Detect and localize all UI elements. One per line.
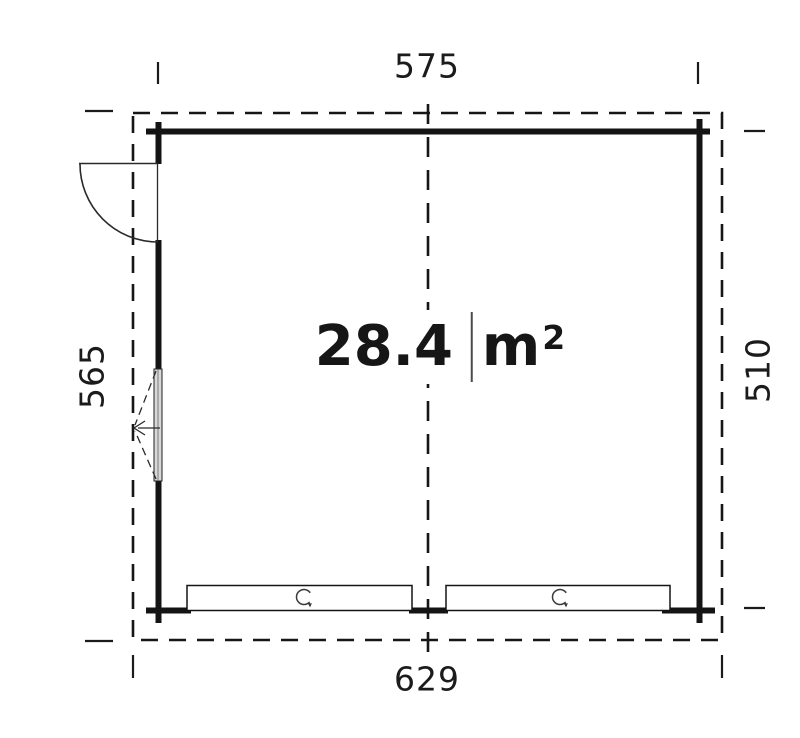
area-value: 28.4 [315,319,453,375]
garage-door-left-panel [187,586,412,611]
dimension-left: 565 [76,343,109,409]
area-unit-base: m [482,314,540,379]
garage-door-right [446,586,670,611]
area-unit-exponent: 2 [542,321,565,354]
window-tilt-icon [134,369,162,481]
dimension-top: 575 [394,50,460,83]
door-swing-arc [80,164,158,242]
area-divider-line [471,312,473,382]
window-open-dash-bottom [135,431,156,479]
garage-door-left [187,586,412,611]
area-label: 28.4 m2 [307,310,574,384]
dimension-bottom: 629 [394,663,460,696]
dimension-right: 510 [742,337,775,403]
area-unit: m2 [482,319,565,375]
door-swing-icon [79,164,158,243]
floor-plan-page: 575 629 565 510 28.4 m2 [0,0,800,738]
window-open-dash-top [135,371,156,425]
